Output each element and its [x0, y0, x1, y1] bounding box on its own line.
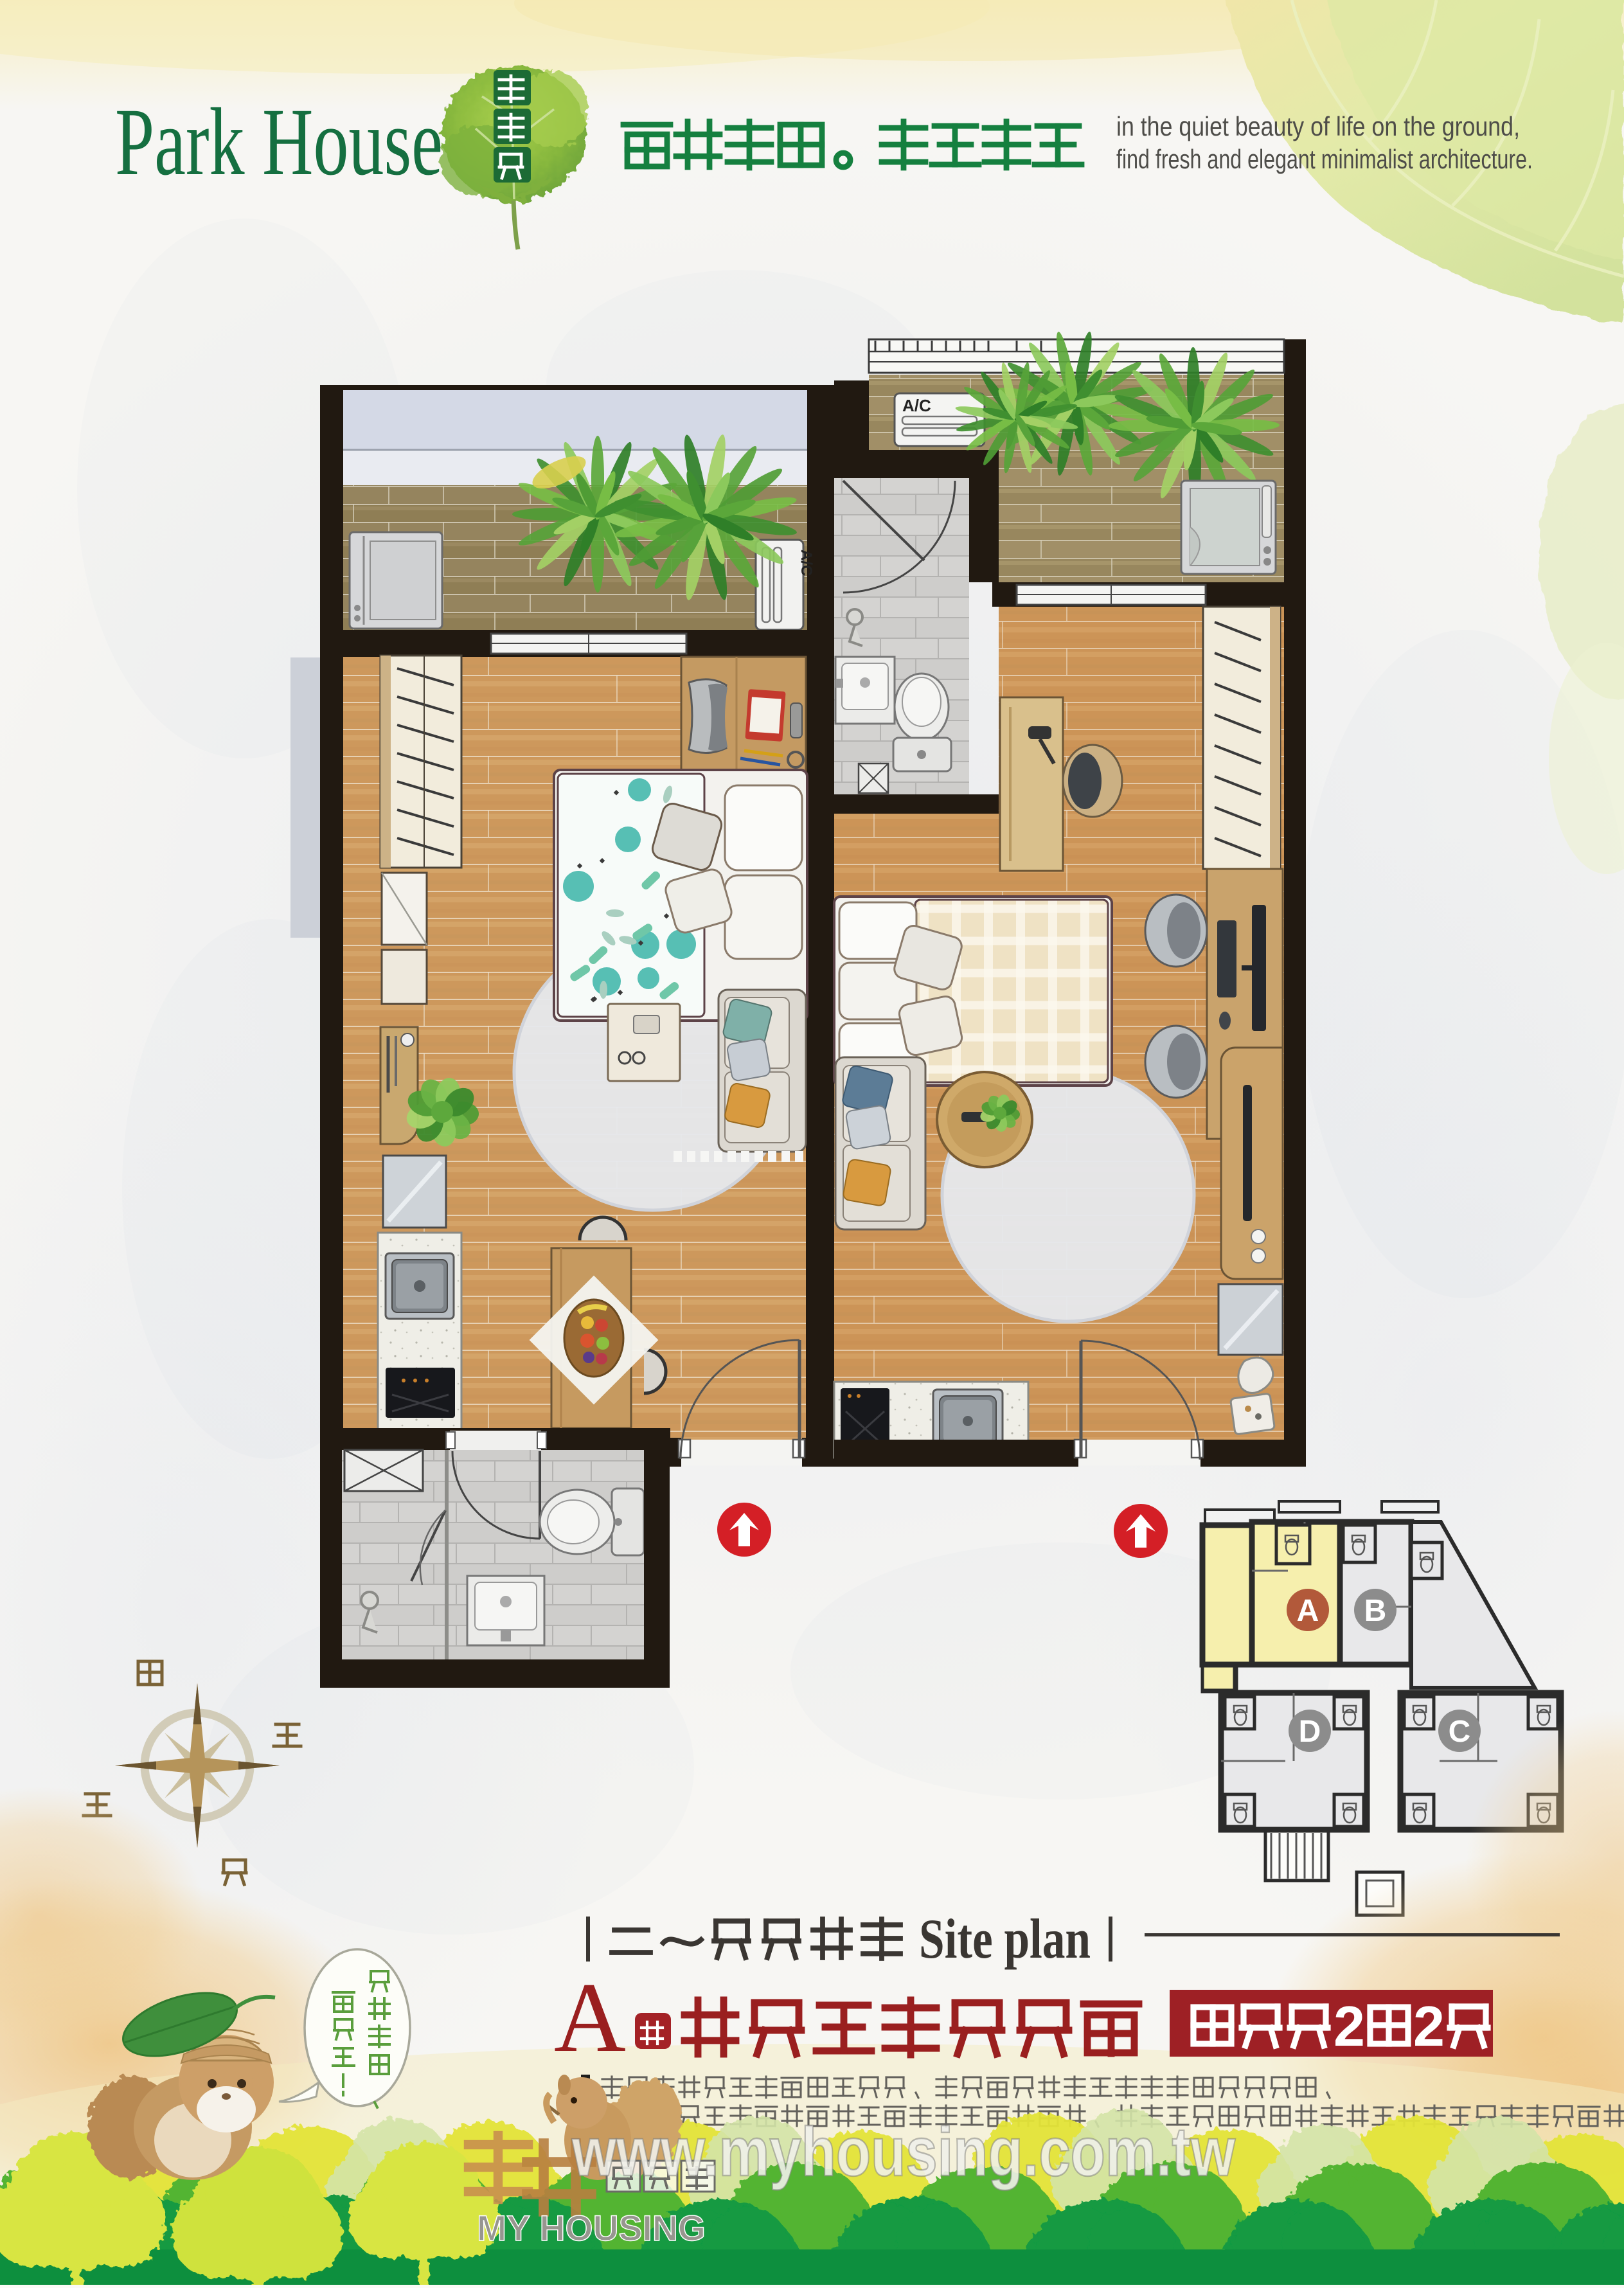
svg-text:A: A: [554, 1962, 626, 2073]
svg-text:A: A: [1297, 1594, 1319, 1628]
svg-text:MY HOUSING: MY HOUSING: [477, 2208, 706, 2248]
svg-text:Park House: Park House: [115, 89, 443, 195]
svg-text:A/C: A/C: [798, 550, 815, 576]
svg-text:2: 2: [1413, 1994, 1445, 2058]
svg-text:D: D: [1299, 1715, 1321, 1749]
svg-text:C: C: [1449, 1715, 1471, 1749]
svg-text:www.myhousing.com.tw: www.myhousing.com.tw: [571, 2113, 1236, 2190]
svg-text:B: B: [1364, 1594, 1387, 1628]
svg-text:2: 2: [1334, 1994, 1365, 2058]
svg-text:find fresh and elegant minimal: find fresh and elegant minimalist archit…: [1116, 144, 1533, 174]
svg-text:Site plan: Site plan: [919, 1908, 1091, 1971]
svg-text:A/C: A/C: [902, 396, 931, 415]
svg-text:in the quiet beauty of life on: in the quiet beauty of life on the groun…: [1116, 111, 1520, 141]
